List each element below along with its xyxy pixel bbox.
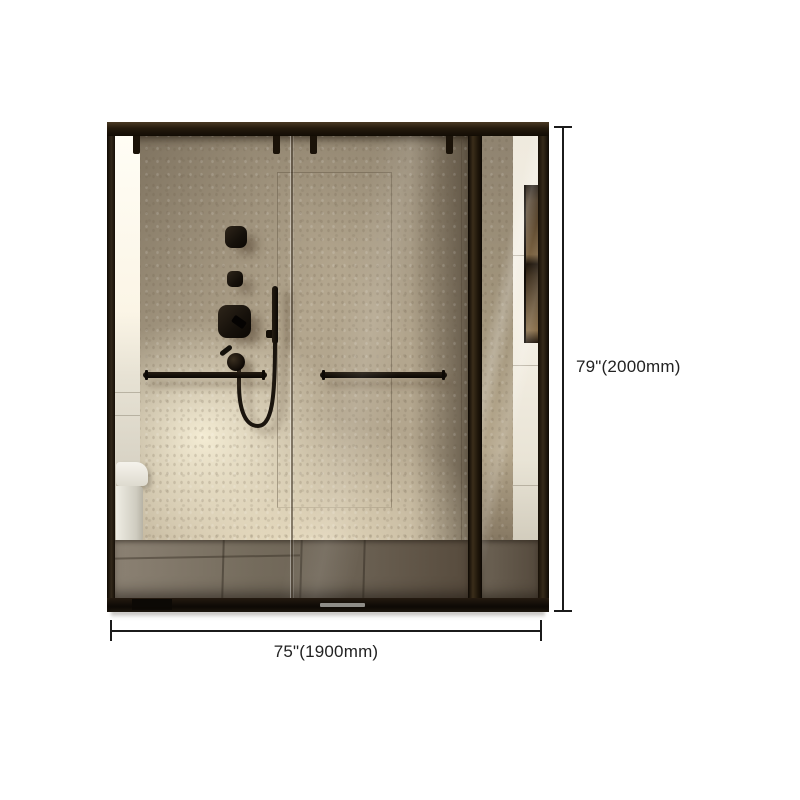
glass-reflection: [115, 136, 468, 598]
door-roller-clip: [273, 136, 280, 154]
ground-shadow: [111, 611, 545, 618]
door-roller-clip: [310, 136, 317, 154]
right-fixed-panel: [482, 136, 538, 598]
shower-glass-main: [115, 136, 468, 598]
bottom-door-stop: [132, 599, 172, 610]
shower-frame-top: [107, 122, 549, 136]
height-dimension-label: 79"(2000mm): [576, 357, 681, 377]
shower-frame-right: [538, 136, 549, 598]
door-roller-clip: [133, 136, 140, 154]
width-dimension-tick-right: [540, 620, 542, 641]
height-dimension-tick-bottom: [554, 610, 572, 612]
height-dimension-line: [562, 127, 564, 612]
height-dimension-tick-top: [554, 126, 572, 128]
glass-reflection: [482, 136, 538, 598]
door-roller-clip: [446, 136, 453, 154]
product-photo: [107, 122, 549, 614]
bottom-track-guide: [320, 603, 365, 607]
width-dimension-line: [111, 630, 542, 632]
product-dimension-image: 79"(2000mm) 75"(1900mm): [0, 0, 800, 800]
shower-door-mullion: [468, 136, 482, 598]
shower-frame-left: [107, 136, 115, 598]
width-dimension-label: 75"(1900mm): [126, 642, 526, 662]
width-dimension-tick-left: [110, 620, 112, 641]
